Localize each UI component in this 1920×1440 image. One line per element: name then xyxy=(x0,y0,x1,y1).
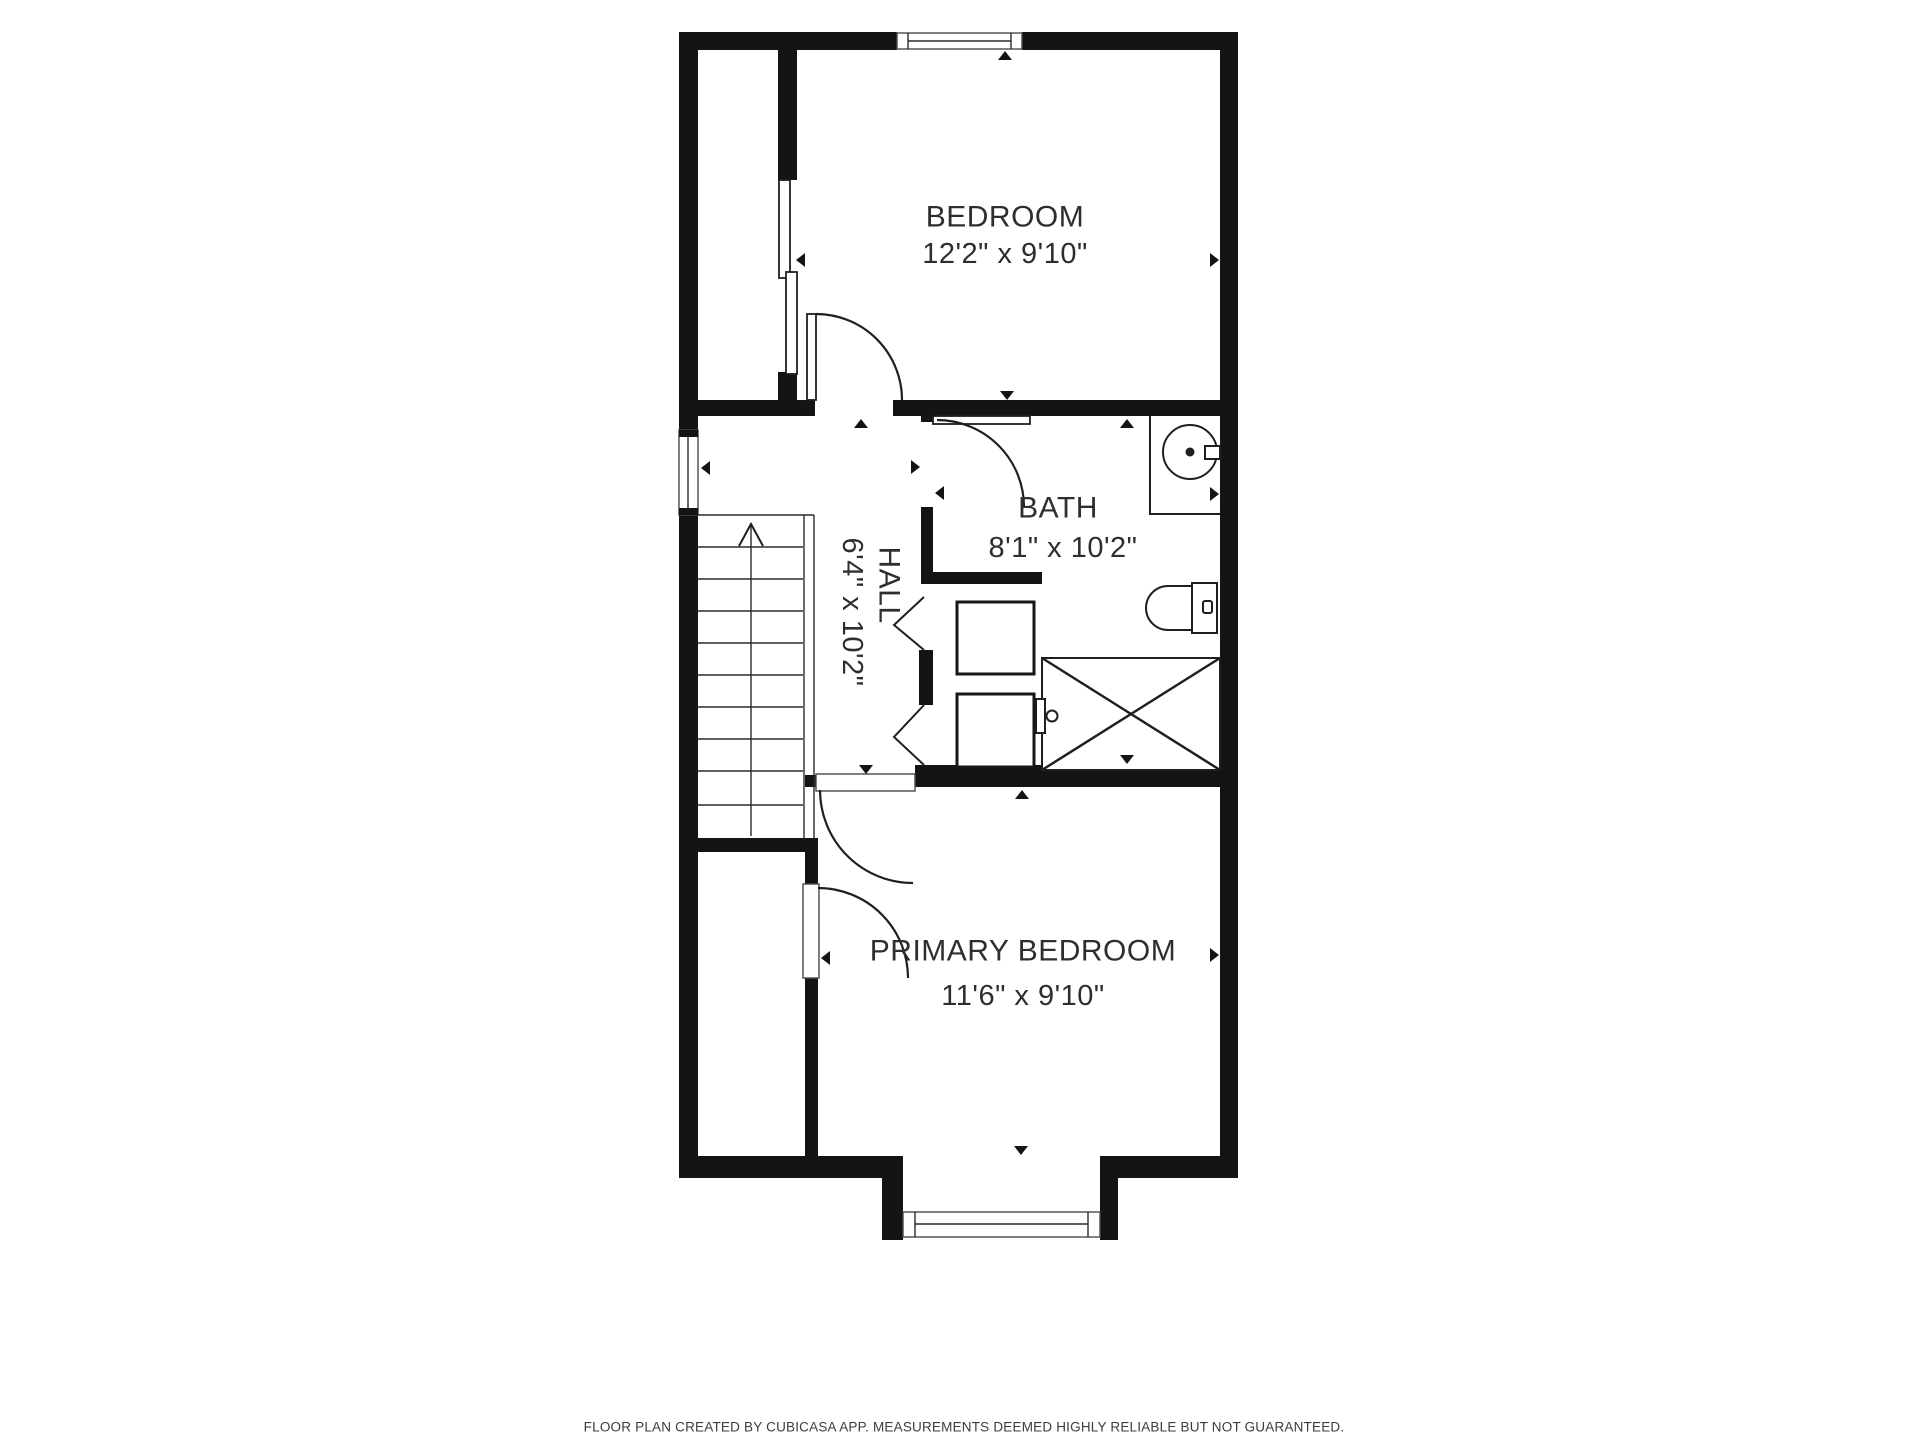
marker-bedroom-top xyxy=(998,51,1012,60)
staircase xyxy=(698,515,814,838)
marker-bedroom-right xyxy=(1210,253,1219,267)
floor-plan-page: BEDROOM 12'2" x 9'10" BATH 8'1" x 10'2" … xyxy=(0,0,1920,1440)
window-hall-left xyxy=(679,430,698,515)
primary-bedroom-dimensions: 11'6" x 9'10" xyxy=(941,980,1104,1012)
window-bedroom-top xyxy=(897,33,1022,49)
window-primary-bottom xyxy=(903,1212,1100,1237)
wall-bedroom-bottom-right xyxy=(893,400,1238,416)
marker-hall-bottom xyxy=(859,765,873,774)
marker-hall-top xyxy=(854,419,868,428)
bath-label: BATH xyxy=(1018,492,1098,525)
wall-top-left xyxy=(679,32,897,50)
bedroom-label: BEDROOM xyxy=(926,201,1085,234)
door-bedroom xyxy=(807,314,902,400)
marker-bedroom-left xyxy=(796,253,805,267)
wall-closet-primary-divider-top xyxy=(805,852,818,885)
closet-sliding-door xyxy=(779,180,797,374)
wall-right xyxy=(1220,32,1238,1178)
toilet-icon xyxy=(1146,583,1217,633)
floor-plan-drawing: BEDROOM 12'2" x 9'10" BATH 8'1" x 10'2" … xyxy=(0,0,1920,1440)
wall-hall-bottom-stub xyxy=(805,775,817,787)
vanity-cabinets xyxy=(894,597,1034,767)
wall-closet-divider-top xyxy=(778,50,797,180)
hall-dimensions: 6'4" x 10'2" xyxy=(836,538,868,687)
door-bath xyxy=(933,416,1030,507)
sink-icon xyxy=(1150,416,1220,514)
marker-primary-top xyxy=(1015,790,1029,799)
door-primary-from-hall xyxy=(816,774,915,883)
bath-dimensions: 8'1" x 10'2" xyxy=(989,532,1138,564)
bath-fixtures xyxy=(894,416,1220,770)
marker-bath-right xyxy=(1210,487,1219,501)
wall-vanity-closet-mid-stub xyxy=(919,650,933,705)
hall-label: HALL xyxy=(873,546,906,623)
wall-bay-right xyxy=(1100,1156,1118,1240)
marker-bath-left xyxy=(935,486,944,500)
wall-closet-primary-divider-bottom xyxy=(805,977,818,1156)
bedroom-dimensions: 12'2" x 9'10" xyxy=(922,238,1088,270)
marker-primary-right xyxy=(1210,948,1219,962)
marker-primary-bottom xyxy=(1014,1146,1028,1155)
primary-bedroom-label: PRIMARY BEDROOM xyxy=(870,935,1176,968)
wall-hall-bath-divider-stub xyxy=(921,414,933,422)
marker-bath-top xyxy=(1120,419,1134,428)
footer-disclaimer: FLOOR PLAN CREATED BY CUBICASA APP. MEAS… xyxy=(584,1420,1345,1435)
marker-primary-left xyxy=(821,951,830,965)
shower-icon xyxy=(1036,658,1220,770)
wall-bay-left xyxy=(882,1156,903,1240)
wall-bottom-left xyxy=(679,1156,903,1178)
wall-left-upper xyxy=(679,32,698,430)
wall-closet-divider-stub xyxy=(778,372,797,402)
wall-top-right xyxy=(1022,32,1238,50)
wall-bedroom-bottom-left xyxy=(698,400,815,416)
stairs-up-arrow-icon xyxy=(739,524,763,836)
marker-bedroom-bottom xyxy=(1000,391,1014,400)
marker-hall-right xyxy=(911,460,920,474)
wall-bottom-right xyxy=(1118,1156,1238,1178)
opening-chevron-lower xyxy=(894,705,924,765)
wall-vanity-closet-top xyxy=(921,572,1042,584)
wall-stairs-bottom xyxy=(679,838,818,852)
marker-hall-left xyxy=(701,461,710,475)
